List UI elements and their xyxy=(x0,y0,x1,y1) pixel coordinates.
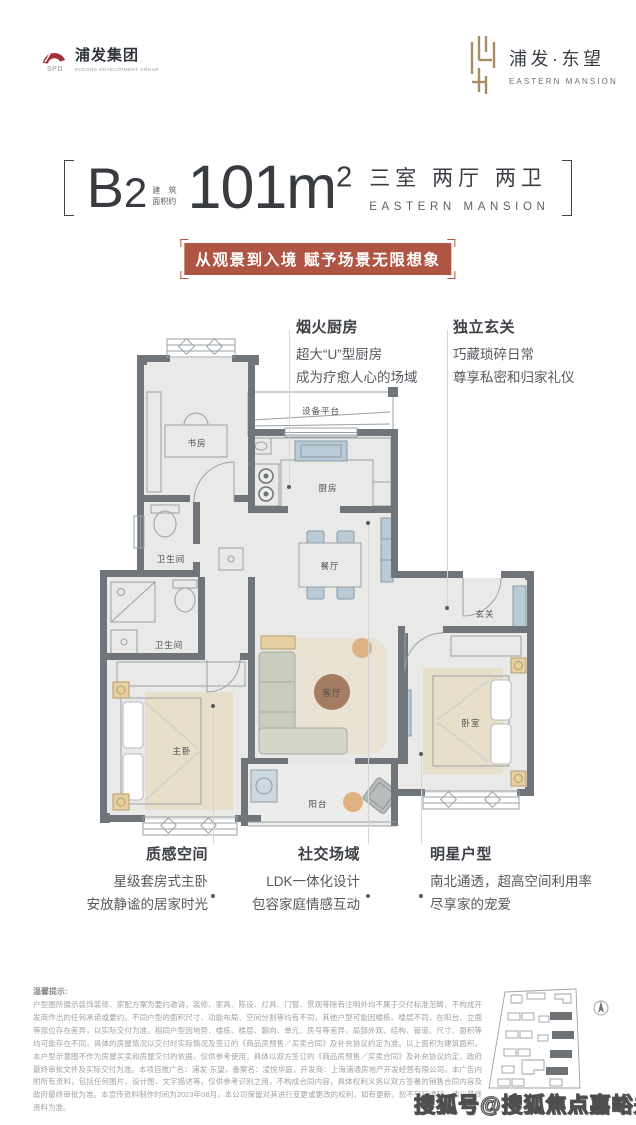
developer-logo-subtitle: PUDONG DEVELOPMENT GROUP xyxy=(75,67,159,72)
area-note-line2: 面积约 xyxy=(152,196,179,207)
callout-social-title: 社交场域 xyxy=(180,843,360,864)
banner-corner-br xyxy=(448,271,456,279)
room-label-kitchen: 厨房 xyxy=(318,483,337,493)
area-note: 建 筑 面积约 xyxy=(152,185,179,207)
connector-star-dot-bottom xyxy=(419,894,423,898)
bracket-left xyxy=(64,160,74,216)
area-note-line1: 建 筑 xyxy=(152,185,179,196)
connector-kitchen xyxy=(289,330,290,486)
banner-corner-tr xyxy=(448,239,456,247)
unit-digit: 2 xyxy=(124,169,147,216)
unit-title: B2 建 筑 面积约 101m2 三室 两厅 两卫 EASTERN MANSIO… xyxy=(0,157,636,218)
callout-social-line1: LDK一体化设计 xyxy=(180,871,360,894)
watermark: 搜狐号@搜狐焦点嘉峪关站 xyxy=(414,1089,636,1119)
connector-kitchen-dot xyxy=(287,485,291,489)
area-value: 101m2 xyxy=(188,157,353,218)
room-label-bath-upper: 卫生间 xyxy=(157,554,186,564)
banner-corner-bl xyxy=(180,271,188,279)
unit-code: B2 xyxy=(87,160,148,216)
floorplan-drawing: 设备平台 xyxy=(85,330,555,840)
room-label-entry: 玄关 xyxy=(475,609,494,619)
bracket-right xyxy=(562,160,572,216)
callout-star-line1: 南北通透，超高空间利用率 xyxy=(430,871,636,894)
room-label-balcony: 阳台 xyxy=(308,799,327,809)
eastern-mansion-icon xyxy=(468,34,498,96)
project-logo-subtitle: EASTERN MANSION xyxy=(509,77,618,86)
developer-logo: SPD 浦发集团 PUDONG DEVELOPMENT GROUP xyxy=(40,44,159,78)
slogan-text: 从观景到入境 赋予场景无限想象 xyxy=(195,252,440,269)
room-label-master: 主卧 xyxy=(172,746,191,756)
slogan-banner: 从观景到入境 赋予场景无限想象 xyxy=(184,243,451,275)
connector-entry-dot xyxy=(445,606,449,610)
area-exponent: 2 xyxy=(336,162,352,194)
connector-social-dot-bottom xyxy=(366,894,370,898)
room-label-study: 书房 xyxy=(187,438,206,448)
room-label-bath-lower: 卫生间 xyxy=(155,640,184,650)
connector-star xyxy=(421,754,422,844)
equipment-platform: 设备平台 xyxy=(248,392,393,435)
disclaimer-title: 温馨提示: xyxy=(33,986,68,997)
room-label-equipment: 设备平台 xyxy=(302,406,340,416)
project-logo-title: 浦发·东望 xyxy=(509,45,618,71)
compass-icon xyxy=(598,1001,604,1013)
pudong-group-icon: SPD xyxy=(40,44,68,78)
connector-star-dot-top xyxy=(419,752,423,756)
room-label-bedroom: 卧室 xyxy=(461,718,480,728)
callout-star-line2: 尽享家的宠爱 xyxy=(430,894,636,917)
connector-master-dot-top xyxy=(211,704,215,708)
layout-en: EASTERN MANSION xyxy=(369,201,549,213)
connector-social xyxy=(368,523,369,844)
callout-star: 明星户型 南北通透，超高空间利用率 尽享家的宠爱 xyxy=(430,843,636,916)
room-label-dining: 餐厅 xyxy=(320,561,339,571)
connector-social-dot-top xyxy=(366,521,370,525)
unit-letter: B xyxy=(87,156,124,219)
room-label-living: 客厅 xyxy=(322,688,341,698)
callout-star-title: 明星户型 xyxy=(430,843,636,864)
banner-corner-tl xyxy=(180,239,188,247)
area-number: 101m xyxy=(188,153,337,221)
layout-cn: 三室 两厅 两卫 xyxy=(369,162,549,192)
project-logo: 浦发·东望 EASTERN MANSION xyxy=(468,34,618,96)
layout-summary: 三室 两厅 两卫 EASTERN MANSION xyxy=(369,162,549,213)
developer-logo-title: 浦发集团 xyxy=(75,44,159,65)
svg-text:SPD: SPD xyxy=(47,66,63,73)
callout-social-line2: 包容家庭情感互动 xyxy=(180,894,360,917)
entry-furniture xyxy=(513,586,526,628)
connector-master xyxy=(213,706,214,844)
floorplan-poster: SPD 浦发集团 PUDONG DEVELOPMENT GROUP 浦发·东望 … xyxy=(0,0,636,1125)
connector-entry xyxy=(447,330,448,607)
callout-social: 社交场域 LDK一体化设计 包容家庭情感互动 xyxy=(180,843,360,916)
site-map xyxy=(486,986,614,1098)
